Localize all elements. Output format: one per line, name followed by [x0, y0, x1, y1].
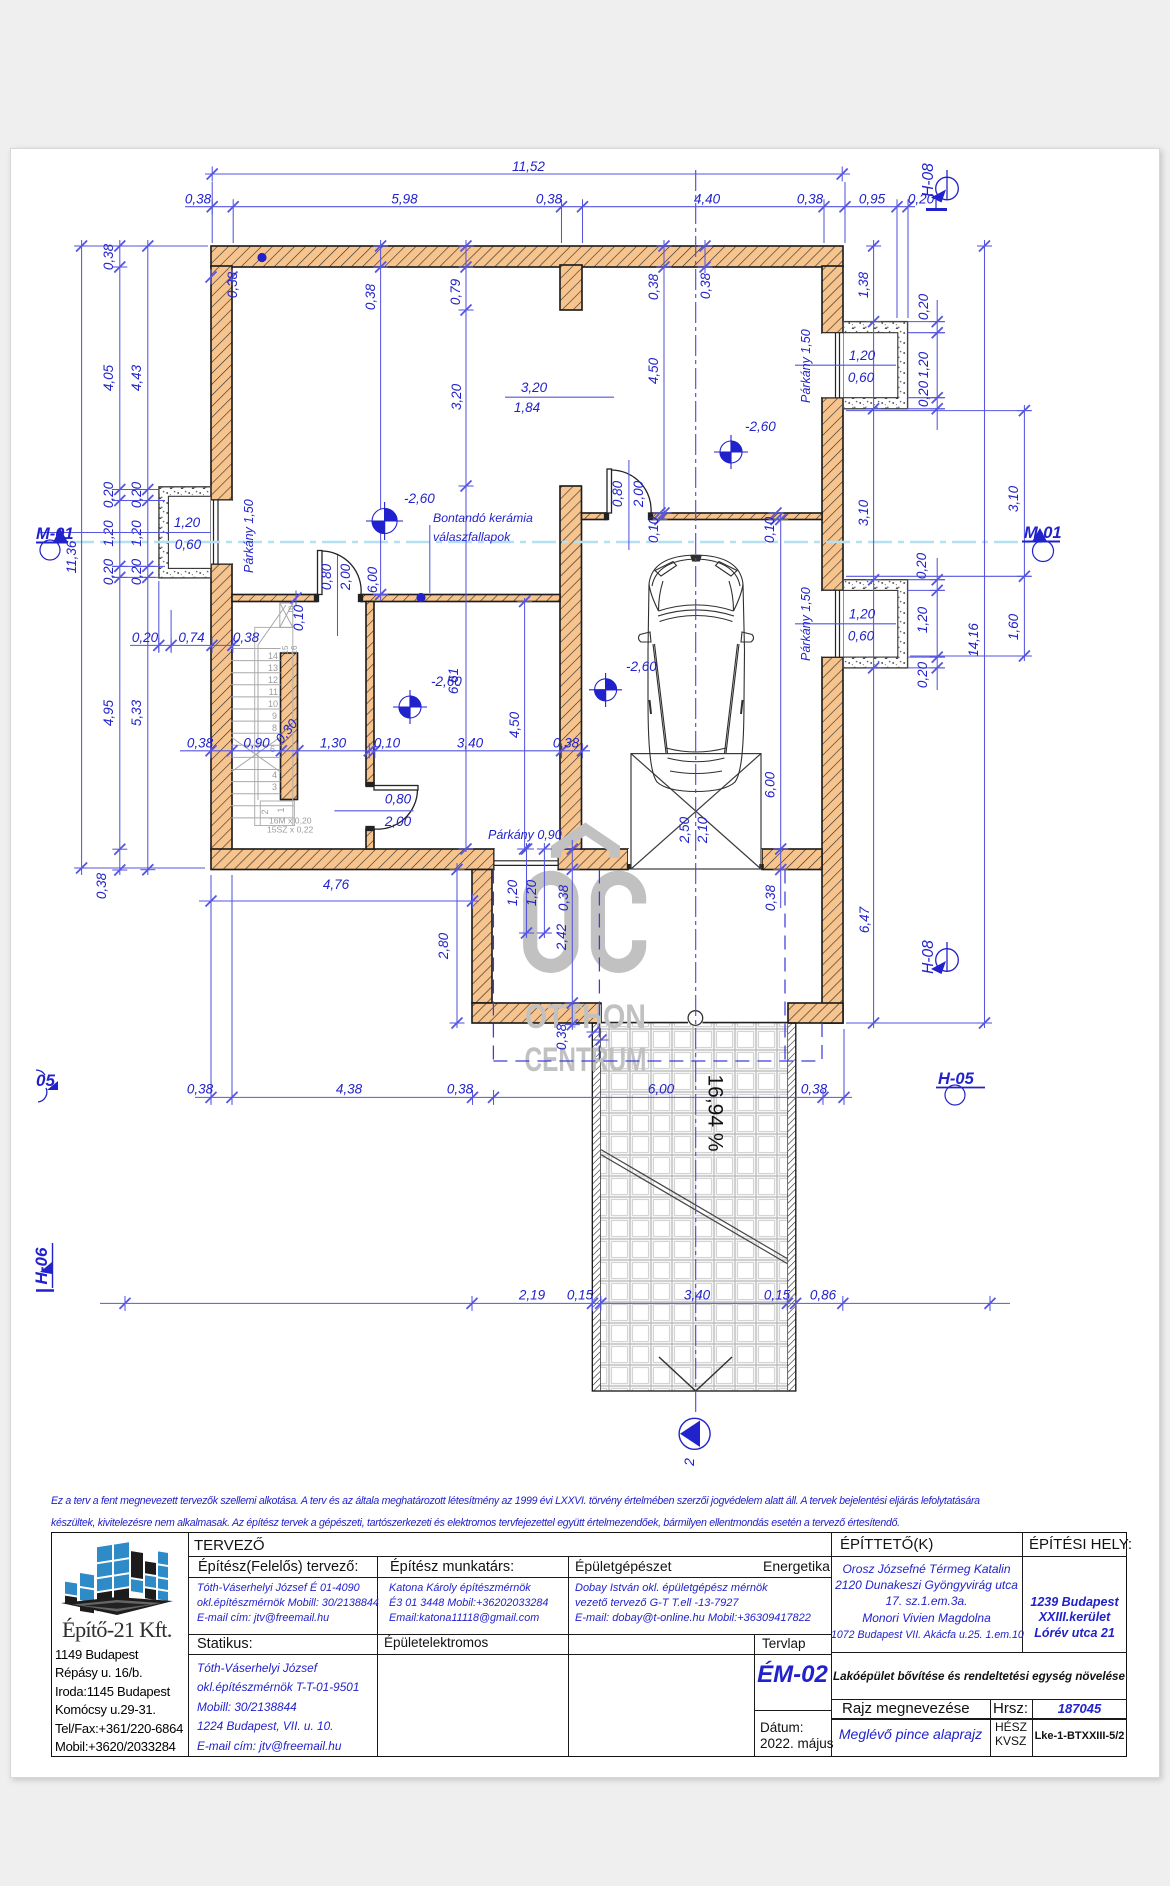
svg-text:CENTRUM: CENTRUM	[525, 1041, 647, 1079]
svg-text:0,20: 0,20	[129, 481, 144, 508]
svg-text:0,80: 0,80	[610, 480, 625, 507]
svg-text:Bontandó kerámia: Bontandó kerámia	[433, 511, 533, 525]
svg-text:0,38: 0,38	[763, 884, 778, 911]
svg-text:Párkány 1,50: Párkány 1,50	[799, 587, 813, 661]
svg-text:H-08: H-08	[920, 940, 937, 974]
svg-text:0,20: 0,20	[129, 558, 144, 585]
svg-text:4,40: 4,40	[694, 192, 721, 207]
svg-text:4,76: 4,76	[323, 877, 350, 892]
svg-text:0,20: 0,20	[915, 661, 930, 688]
svg-text:2,19: 2,19	[518, 1288, 546, 1303]
svg-text:1,20: 1,20	[915, 606, 930, 633]
svg-text:12: 12	[268, 675, 278, 685]
svg-text:0,38: 0,38	[536, 192, 563, 207]
svg-text:0,15: 0,15	[764, 1288, 791, 1303]
svg-text:0,15: 0,15	[567, 1288, 594, 1303]
svg-text:0,60: 0,60	[175, 537, 202, 552]
svg-text:4,38: 4,38	[336, 1082, 363, 1097]
svg-text:0,38: 0,38	[94, 872, 109, 899]
svg-text:11,36: 11,36	[64, 540, 79, 573]
svg-text:0,10: 0,10	[646, 516, 661, 543]
svg-text:15SZ x 0,22: 15SZ x 0,22	[267, 825, 314, 835]
svg-text:-2,60: -2,60	[626, 659, 657, 674]
svg-text:3,40: 3,40	[457, 736, 484, 751]
svg-text:14: 14	[268, 651, 278, 661]
svg-text:6: 6	[270, 744, 275, 754]
svg-text:2,50: 2,50	[677, 816, 692, 844]
svg-text:4,43: 4,43	[129, 364, 144, 391]
svg-text:0,20: 0,20	[132, 630, 159, 645]
svg-text:1,20: 1,20	[916, 351, 931, 378]
svg-text:2,10: 2,10	[695, 816, 710, 844]
svg-text:0,79: 0,79	[448, 278, 463, 305]
svg-text:0,38: 0,38	[363, 283, 378, 310]
svg-text:1,20: 1,20	[129, 520, 144, 547]
svg-text:0,38: 0,38	[447, 1082, 474, 1097]
svg-text:0,38: 0,38	[556, 884, 571, 911]
svg-text:0,20: 0,20	[101, 558, 116, 585]
svg-text:9: 9	[272, 711, 277, 721]
svg-text:0,10: 0,10	[762, 516, 777, 543]
svg-text:14,16: 14,16	[966, 623, 981, 657]
svg-text:6,00: 6,00	[763, 771, 778, 798]
svg-text:3: 3	[272, 782, 277, 792]
svg-text:0,38: 0,38	[801, 1082, 828, 1097]
svg-text:0,90: 0,90	[243, 736, 270, 751]
svg-text:Párkány 0,90: Párkány 0,90	[488, 828, 562, 842]
svg-text:0,38: 0,38	[553, 736, 580, 751]
svg-text:2,42: 2,42	[554, 923, 569, 951]
svg-text:1,20: 1,20	[505, 879, 520, 906]
svg-text:0,38: 0,38	[187, 736, 214, 751]
svg-text:5,33: 5,33	[129, 699, 144, 726]
svg-text:10: 10	[268, 699, 278, 709]
svg-text:0,80: 0,80	[385, 792, 412, 807]
svg-text:2: 2	[681, 1458, 697, 1467]
svg-text:6,00: 6,00	[365, 566, 380, 593]
svg-text:16,94 %: 16,94 %	[703, 1074, 726, 1151]
svg-text:0,60: 0,60	[848, 370, 875, 385]
svg-text:0,38: 0,38	[225, 271, 240, 298]
svg-text:1,30: 1,30	[320, 736, 347, 751]
svg-text:1,20: 1,20	[174, 515, 201, 530]
svg-text:11: 11	[269, 687, 278, 697]
svg-text:5,98: 5,98	[391, 192, 418, 207]
svg-text:0,74: 0,74	[178, 630, 204, 645]
svg-text:16: 16	[290, 645, 299, 654]
svg-text:-2,60: -2,60	[431, 674, 462, 689]
svg-text:2,00: 2,00	[384, 814, 412, 829]
svg-text:13: 13	[268, 663, 278, 673]
svg-text:0,38: 0,38	[185, 192, 212, 207]
svg-text:0,86: 0,86	[810, 1288, 837, 1303]
svg-text:1,20: 1,20	[849, 607, 876, 622]
svg-text:15: 15	[281, 645, 290, 654]
svg-text:1,20: 1,20	[849, 348, 876, 363]
svg-text:4,50: 4,50	[507, 711, 522, 738]
svg-text:2,80: 2,80	[436, 932, 451, 960]
svg-text:-2,60: -2,60	[745, 419, 776, 434]
svg-text:1,84: 1,84	[514, 400, 540, 415]
svg-text:3,20: 3,20	[449, 383, 464, 410]
svg-text:2: 2	[260, 809, 270, 814]
svg-text:0,60: 0,60	[848, 629, 875, 644]
svg-text:0,20: 0,20	[101, 481, 116, 508]
svg-text:válaszfallapok: válaszfallapok	[433, 530, 511, 544]
svg-text:2,00: 2,00	[631, 480, 646, 508]
svg-text:0,38: 0,38	[233, 630, 260, 645]
svg-text:0,38: 0,38	[187, 1082, 214, 1097]
svg-text:0,20: 0,20	[916, 293, 931, 320]
svg-text:2,00: 2,00	[338, 563, 353, 591]
svg-text:6,00: 6,00	[648, 1082, 675, 1097]
svg-text:0,38: 0,38	[698, 272, 713, 299]
svg-text:-2,60: -2,60	[404, 491, 435, 506]
svg-text:0,10: 0,10	[291, 604, 306, 631]
svg-text:3,40: 3,40	[684, 1288, 711, 1303]
svg-text:0,80: 0,80	[319, 563, 334, 590]
svg-text:3,10: 3,10	[1006, 485, 1021, 512]
svg-text:4,50: 4,50	[646, 357, 661, 384]
svg-text:3,20: 3,20	[521, 380, 548, 395]
svg-text:4,95: 4,95	[101, 699, 116, 726]
svg-text:0,20: 0,20	[916, 380, 931, 407]
svg-text:0,38: 0,38	[101, 243, 116, 270]
svg-text:Párkány 1,50: Párkány 1,50	[799, 329, 813, 403]
svg-text:11,52: 11,52	[512, 159, 545, 174]
svg-text:Párkány 1,50: Párkány 1,50	[242, 499, 256, 573]
svg-text:4,05: 4,05	[101, 364, 116, 391]
svg-text:1: 1	[276, 807, 286, 812]
svg-text:0,38: 0,38	[554, 1023, 569, 1050]
svg-text:1,20: 1,20	[101, 520, 116, 547]
svg-text:H-08: H-08	[920, 163, 937, 197]
svg-text:0,10: 0,10	[374, 736, 401, 751]
svg-text:1,38: 1,38	[856, 271, 871, 298]
svg-text:0,20: 0,20	[914, 552, 929, 579]
svg-text:1,60: 1,60	[1006, 613, 1021, 640]
svg-text:0,38: 0,38	[646, 273, 661, 300]
svg-text:1,20: 1,20	[524, 879, 539, 906]
svg-text:0,95: 0,95	[859, 192, 886, 207]
svg-text:4: 4	[272, 770, 277, 780]
svg-text:0,38: 0,38	[797, 192, 824, 207]
svg-text:OTTHON: OTTHON	[525, 998, 646, 1036]
svg-text:6,47: 6,47	[857, 906, 872, 933]
svg-text:3,10: 3,10	[856, 499, 871, 526]
